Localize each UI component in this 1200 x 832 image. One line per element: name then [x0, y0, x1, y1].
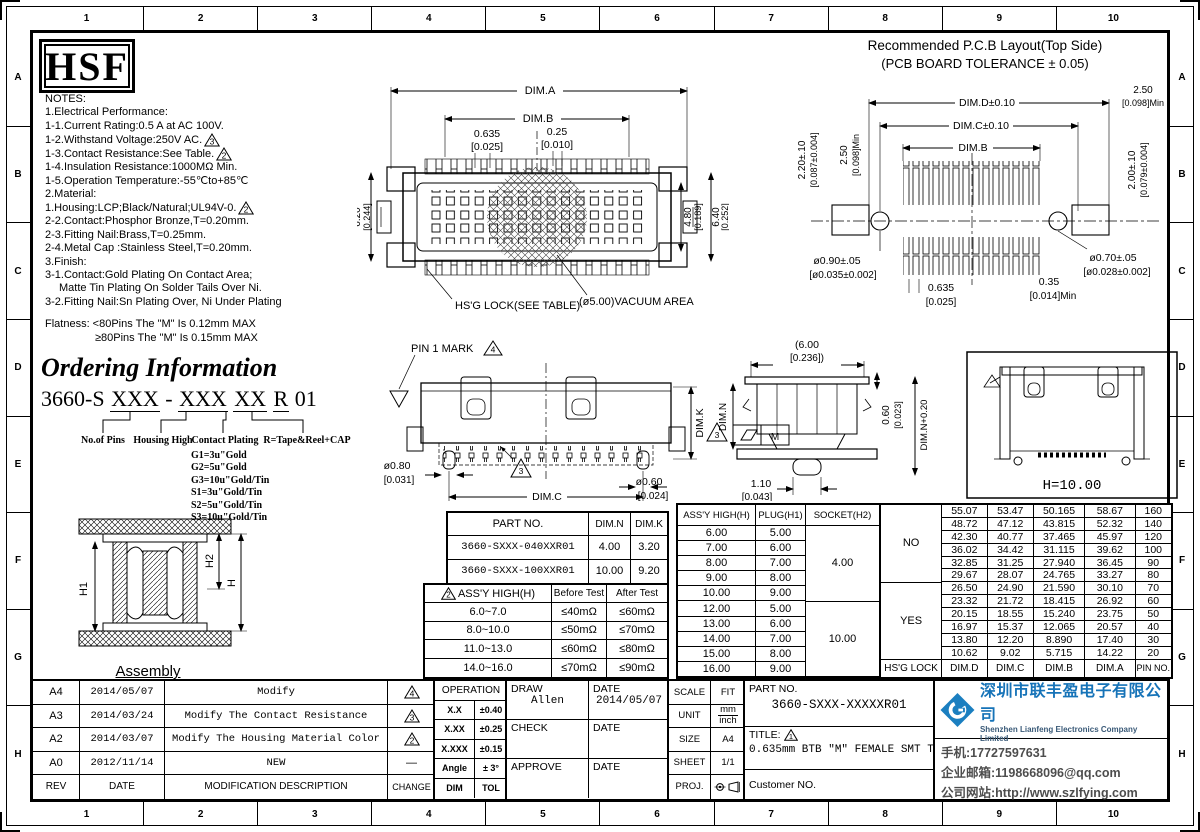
unit-label: UNIT	[669, 705, 711, 729]
sheet-info-block: SCALE FIT UNIT mm inch SIZE A4 SHEET 1/1…	[669, 681, 745, 799]
footer-dim-c: DIM.C	[988, 660, 1033, 677]
table-cell: 6.00	[756, 541, 805, 556]
check-label: CHECK	[511, 722, 584, 734]
pcb-dim-c: DIM.C±0.10	[953, 120, 1009, 132]
pcb-pad: 0.35	[1039, 276, 1060, 288]
ruler-letter: H	[6, 706, 30, 802]
rev-desc: Modify The Housing Material Color	[165, 728, 388, 752]
plating-option: G1=3u"Gold	[191, 450, 269, 462]
pcb-outer-left: 2.20±.10	[797, 140, 808, 179]
table-cell: 3660-SXXX-100XXR01	[448, 560, 589, 583]
table-cell: 39.62	[1085, 544, 1134, 557]
pcb-title-2: (PCB BOARD TOLERANCE ± 0.05)	[881, 56, 1089, 71]
table-cell: 40.77	[988, 531, 1033, 544]
rev-id: A2	[33, 728, 80, 752]
code-housing: XXX	[178, 386, 228, 412]
hsg-lock-note: HS'G LOCK(SEE TABLE)	[455, 300, 580, 312]
pcb-min-left-inch: [0.098]Min	[851, 134, 861, 176]
revision-triangle-icon: 2	[404, 732, 420, 746]
table-cell: 120	[1136, 531, 1172, 544]
scale-value: FIT	[711, 681, 745, 705]
hsf-logo-box: HSF	[39, 39, 135, 93]
corner-mark	[1180, 812, 1200, 832]
table-cell: 5.00	[756, 526, 805, 541]
note-line: 2.Material:	[45, 188, 377, 201]
note-text: 1.Housing:LCP;Black/Natural;UL94V-0.	[45, 202, 236, 215]
label-housing-high: Housing High	[133, 435, 192, 446]
pcb-outer-right-inch: [0.079±0.004]	[1139, 143, 1149, 198]
table-cell: 16.00	[678, 662, 755, 677]
side-view-body	[407, 363, 685, 479]
table-cell: 24.90	[988, 582, 1033, 595]
table-cell: 21.72	[988, 595, 1033, 608]
profile-cap-inch: [0.023]	[893, 401, 903, 429]
table-cell: 12.00	[678, 601, 755, 616]
profile-boss: 1.10	[751, 478, 772, 490]
ordering-leader-lines	[41, 411, 361, 435]
table-cell: 55.07	[942, 505, 986, 518]
dim-a-label: DIM.A	[525, 85, 556, 97]
date-label: DATE	[593, 722, 665, 734]
tol-value: ±0.40	[475, 701, 507, 721]
pcb-pitch-inch: [0.025]	[926, 297, 957, 308]
profile-boss-inch: [0.043]	[742, 492, 773, 501]
table-cell: 9.00	[678, 571, 755, 586]
side-view-dimensions: DIM.K ø0.80 [0.031] ø0.60 [0.024] DIM.C …	[384, 387, 706, 503]
note-line: 2-3.Fitting Nail:Brass,T=0.25mm.	[45, 229, 377, 242]
tol-dim: Angle	[435, 759, 475, 779]
col-header: 2 ASS'Y HIGH(H)	[425, 585, 552, 603]
rev-footer: MODIFICATION DESCRIPTION	[165, 775, 388, 799]
projection-symbol	[711, 775, 745, 799]
third-angle-projection-icon	[714, 781, 742, 793]
rev-date: 2014/05/07	[80, 681, 165, 705]
col-header: Before Test	[552, 585, 607, 603]
table-cell: 12.20	[988, 634, 1033, 647]
table-cell: 15.00	[678, 647, 755, 662]
pcb-outer-left-inch: [0.087±0.004]	[809, 133, 819, 188]
revision-triangle-icon: 3	[404, 709, 420, 723]
table-cell: 13.80	[942, 634, 986, 647]
company-block: 深圳市联丰盈电子有限公司 Shenzhen Lianfeng Electroni…	[935, 681, 1167, 799]
title-value: 0.635mm BTB "M" FEMALE SMT TYPE	[749, 744, 929, 756]
table-cell: 36.02	[942, 544, 986, 557]
assembly-drawing: H1 H2 H	[43, 501, 273, 663]
table-cell: 36.45	[1085, 557, 1134, 570]
assembly-caption: Assembly	[93, 663, 203, 680]
hsg-lock-yes: YES	[881, 583, 941, 661]
ruler-letter: C	[6, 223, 30, 320]
table-cell: 9.00	[756, 586, 805, 601]
ruler-number: 3	[258, 802, 372, 826]
table-cell: 28.07	[988, 569, 1033, 582]
pcb-hole-left: ø0.90±.05	[813, 255, 860, 267]
ruler-letter: H	[1170, 706, 1194, 802]
rev-id: A4	[33, 681, 80, 705]
company-contacts: 手机:17727597631 企业邮箱:1198668096@qq.com 公司…	[935, 739, 1167, 804]
ruler-number: 6	[600, 6, 714, 30]
height-left-inch: [0.244]	[362, 203, 372, 231]
note-line: 2-4.Metal Cap :Stainless Steel,T=0.20mm.	[45, 242, 377, 255]
front-view-dimensions: DIM.A DIM.B 0.635 [0.025] 0.25 [0.010]	[391, 83, 687, 169]
part-no-label: PART NO.	[749, 683, 929, 695]
assembly-geometry	[79, 519, 231, 646]
note-text: 1-2.Withstand Voltage:250V AC.	[45, 134, 202, 147]
socket-h2-high: 10.00	[806, 602, 879, 678]
table-cell: 8.00	[678, 556, 755, 571]
table-cell: 90	[1136, 557, 1172, 570]
ruler-letter: G	[6, 610, 30, 707]
revision-triangle-icon: 2	[441, 587, 456, 600]
approve-date-cell: DATE	[589, 759, 669, 798]
rev-desc: Modify The Contact Resistance	[165, 705, 388, 729]
ruler-number: 10	[1057, 6, 1170, 30]
table-cell: 21.590	[1034, 582, 1084, 595]
profile-body	[737, 377, 877, 475]
table-cell: ≤40mΩ	[552, 603, 607, 621]
note-line: 1-3.Contact Resistance:See Table. 2	[45, 147, 377, 161]
note-line: 3.Finish:	[45, 256, 377, 269]
table-cell: 50	[1136, 608, 1172, 621]
ruler-number: 2	[144, 802, 258, 826]
table-cell: 20.57	[1085, 621, 1134, 634]
h-value-label: H=10.00	[1043, 478, 1102, 494]
triangle-number: 3	[409, 712, 414, 722]
scale-label: SCALE	[669, 681, 711, 705]
table-cell: 140	[1136, 518, 1172, 531]
rev-change: 2	[388, 728, 435, 752]
note-line: 2-2.Contact:Phosphor Bronze,T=0.20mm.	[45, 215, 377, 228]
ruler-number: 5	[486, 6, 600, 30]
table-cell: 58.67	[1085, 505, 1134, 518]
drawing-sheet: 12345678910 12345678910 ABCDEFGH ABCDEFG…	[0, 0, 1200, 832]
note-line: 3-2.Fitting Nail:Sn Plating Over, Ni Und…	[45, 296, 377, 309]
ruler-left: ABCDEFGH	[6, 30, 30, 802]
table-cell: 37.465	[1034, 531, 1084, 544]
ruler-number: 9	[943, 802, 1057, 826]
table-cell: 11.0~13.0	[425, 640, 552, 658]
ruler-letter: F	[6, 513, 30, 610]
table-cell: ≤80mΩ	[607, 640, 667, 658]
company-website[interactable]: 公司网站:http://www.szlfying.com	[941, 782, 1161, 801]
rev-desc: NEW	[165, 752, 388, 776]
triangle-number: 2	[446, 591, 451, 600]
profile-tri-number: 3	[715, 430, 720, 440]
pcb-hole-right: ø0.70±.05	[1089, 252, 1136, 264]
contact-resistance-table: 2 ASS'Y HIGH(H) Before Test After Test 6…	[423, 583, 669, 679]
triangle-number: 2	[244, 205, 249, 215]
tol-value: ± 3°	[475, 759, 507, 779]
hsf-logo-text: HSF	[44, 44, 130, 88]
note-line: 1.Housing:LCP;Black/Natural;UL94V-0. 2	[45, 201, 377, 215]
sheet-label: SHEET	[669, 752, 711, 776]
ruler-number: 4	[372, 6, 486, 30]
table-cell: 16.97	[942, 621, 986, 634]
ruler-number: 5	[486, 802, 600, 826]
title-cell: TITLE: 1 0.635mm BTB "M" FEMALE SMT TYPE	[745, 727, 933, 770]
company-identity: 深圳市联丰盈电子有限公司 Shenzhen Lianfeng Electroni…	[935, 681, 1167, 739]
pcb-min-right: 2.50	[1133, 85, 1153, 96]
table-cell: 3.20	[631, 536, 667, 559]
ruler-number: 7	[715, 802, 829, 826]
flatness-note: Flatness: <80Pins The "M" Is 0.12mm MAX	[45, 318, 377, 331]
table-cell: 12.065	[1034, 621, 1084, 634]
table-cell: 45.97	[1085, 531, 1134, 544]
table-cell: 8.00	[756, 647, 805, 662]
ruler-letter: A	[6, 30, 30, 127]
table-cell: 23.75	[1085, 608, 1134, 621]
draw-date-cell: DATE 2014/05/07	[589, 681, 669, 720]
table-cell: 7.00	[678, 541, 755, 556]
table-cell: 8.0~10.0	[425, 622, 552, 640]
pcb-outer-right: 2.00±.10	[1127, 150, 1138, 189]
footer-dim-d: DIM.D	[942, 660, 986, 677]
operation-header: OPERATION	[435, 681, 507, 701]
date-label: DATE	[593, 761, 665, 773]
size-value: A4	[711, 728, 745, 752]
rev-id: A3	[33, 705, 80, 729]
table-cell: 9.00	[756, 662, 805, 677]
table-cell: 15.37	[988, 621, 1033, 634]
pcb-geometry	[811, 153, 1161, 285]
approve-label: APPROVE	[511, 761, 584, 773]
revision-table: A4 2014/05/07 Modify 4 A3 2014/03/24 Mod…	[33, 681, 435, 799]
unit-value: mm inch	[711, 705, 745, 729]
ruler-number: 1	[30, 802, 144, 826]
ruler-letter: G	[1170, 610, 1194, 707]
table-cell: ≤50mΩ	[552, 622, 607, 640]
draw-label: DRAW	[511, 683, 584, 695]
table-cell: 30	[1136, 634, 1172, 647]
date-label: DATE	[593, 683, 665, 695]
table-cell: 7.00	[756, 556, 805, 571]
pin1-tri-number: 4	[491, 345, 496, 355]
ruler-letter: F	[1170, 513, 1194, 610]
ruler-number: 9	[943, 6, 1057, 30]
table-cell: 5.00	[756, 601, 805, 616]
company-logo-icon	[939, 690, 976, 730]
company-email: 企业邮箱:1198668096@qq.com	[941, 762, 1161, 781]
plating-option: S1=3u"Gold/Tin	[191, 487, 269, 499]
tol-footer: DIM	[435, 779, 475, 799]
tol-footer: TOL	[475, 779, 507, 799]
note-line: NOTES:	[45, 93, 377, 106]
dim-b-label: DIM.B	[523, 113, 554, 125]
code-prefix: 3660-S	[41, 386, 105, 411]
table-cell: 6.0~7.0	[425, 603, 552, 621]
pcb-min-left: 2.50	[839, 145, 850, 165]
ruler-number: 3	[258, 6, 372, 30]
rev-change: —	[388, 752, 435, 776]
pcb-title-1: Recommended P.C.B Layout(Top Side)	[868, 38, 1103, 53]
draw-name: Allen	[511, 695, 584, 707]
flatness-m: M	[771, 432, 779, 443]
table-cell: 5.715	[1034, 647, 1084, 660]
table-cell: 15.240	[1034, 608, 1084, 621]
front-view-body	[377, 131, 697, 275]
dim-h2: H2	[204, 554, 216, 568]
footer-dim-b: DIM.B	[1034, 660, 1084, 677]
table-cell: ≤90mΩ	[607, 659, 667, 677]
table-cell: 7.00	[756, 632, 805, 647]
table-cell: 34.42	[988, 544, 1033, 557]
corner-mark	[1180, 0, 1200, 20]
rev-footer: REV	[33, 775, 80, 799]
height-mid-inch: [0.189]	[693, 203, 703, 231]
label-no-of-pins: No.of Pins	[81, 435, 125, 446]
rev-change: 3	[388, 705, 435, 729]
triangle-number: 1	[788, 732, 792, 741]
table-cell: 3660-SXXX-040XXR01	[448, 536, 589, 559]
table-cell: 47.12	[988, 518, 1033, 531]
flatness-note: ≥80Pins The "M" Is 0.15mm MAX	[45, 332, 377, 345]
rev-date: 2014/03/24	[80, 705, 165, 729]
height-right-inch: [0.252]	[720, 203, 729, 231]
profile-dim-n20: DIM.N+0.20	[919, 400, 930, 451]
table-cell: 53.47	[988, 505, 1033, 518]
footer-dim-a: DIM.A	[1085, 660, 1134, 677]
table-cell: 6.00	[756, 617, 805, 632]
note-text: 1-3.Contact Resistance:See Table.	[45, 148, 214, 161]
col-header: DIM.N	[589, 513, 631, 536]
table-cell: 40	[1136, 621, 1172, 634]
ruler-number: 6	[600, 802, 714, 826]
pin1-mark: PIN 1 MARK 4	[390, 341, 502, 407]
ruler-number: 8	[829, 6, 943, 30]
connector-side-view: PIN 1 MARK 4	[381, 339, 713, 511]
ruler-letter: E	[6, 417, 30, 514]
part-title-block: PART NO. 3660-SXXX-XXXXXR01 TITLE: 1 0.6…	[745, 681, 935, 799]
code-suffix: 01	[295, 386, 317, 411]
table-cell: 60	[1136, 595, 1172, 608]
dim-h: H	[226, 579, 238, 587]
profile-dimensions: DIM.N 0.60 [0.023] DIM.N+0.20 1.10 [0.04…	[718, 373, 930, 501]
pad-inch: [0.010]	[541, 139, 573, 151]
table-cell: 10.00	[678, 586, 755, 601]
ruler-letter: D	[6, 320, 30, 417]
table-cell: 43.815	[1034, 518, 1084, 531]
table-cell: 48.72	[942, 518, 986, 531]
unit-inch: inch	[719, 716, 736, 726]
connector-front-view: DIM.A DIM.B 0.635 [0.025] 0.25 [0.010]	[357, 73, 729, 323]
plating-option: G2=5u"Gold	[191, 462, 269, 474]
triangle-number: 2	[222, 151, 227, 161]
check-cell: CHECK	[507, 720, 589, 759]
table-cell: ≤70mΩ	[552, 659, 607, 677]
ruler-number: 8	[829, 802, 943, 826]
note-line: 1.Electrical Performance:	[45, 106, 377, 119]
profile-width: (6.00	[795, 339, 819, 351]
profile-cap: 0.60	[881, 405, 892, 425]
rev-date: 2012/11/14	[80, 752, 165, 776]
table-cell: 20	[1136, 647, 1172, 660]
col-header: PLUG(H1)	[756, 505, 805, 526]
draw-cell: DRAW Allen	[507, 681, 589, 720]
tol-value: ±0.25	[475, 720, 507, 740]
side-tri-number: 3	[519, 466, 524, 476]
dia-right: ø0.60	[636, 476, 663, 488]
customer-label: Customer NO.	[749, 779, 816, 791]
profile-width-inch: [0.236])	[790, 353, 824, 364]
hsg-lock-no: NO	[881, 505, 941, 583]
triangle-number: 4	[409, 689, 414, 699]
note-line: 1-1.Current Rating:0.5 A at AC 100V.	[45, 120, 377, 133]
dim-h1: H1	[78, 582, 90, 596]
ruler-number: 1	[30, 6, 144, 30]
code-pins: XXX	[110, 386, 160, 412]
pcb-min-right-inch: [0.098]Min	[1122, 98, 1164, 108]
label-contact-plating: Contact Plating	[192, 435, 259, 446]
table-cell: 10.62	[942, 647, 986, 660]
table-cell: 20.15	[942, 608, 986, 621]
table-cell: 14.00	[678, 632, 755, 647]
table-cell: 80	[1136, 569, 1172, 582]
pitch-value: 0.635	[474, 128, 500, 140]
pcb-dim-b: DIM.B	[958, 142, 987, 154]
rev-id: A0	[33, 752, 80, 776]
connector-profile-view: (6.00 [0.236]) DIM.N	[699, 337, 951, 501]
part-no-value: 3660-SXXX-XXXXXR01	[749, 698, 929, 712]
table-cell: 31.115	[1034, 544, 1084, 557]
header-text: ASS'Y HIGH(H)	[458, 588, 535, 600]
code-reel: R	[273, 386, 290, 412]
company-phone: 手机:17727597631	[941, 742, 1161, 761]
col-header: DIM.K	[631, 513, 667, 536]
code-plating: XX	[233, 386, 267, 412]
table-cell: ≤60mΩ	[607, 603, 667, 621]
table-cell: 23.32	[942, 595, 986, 608]
rev-date: 2014/03/07	[80, 728, 165, 752]
table-cell: 42.30	[942, 531, 986, 544]
table-cell: 18.55	[988, 608, 1033, 621]
note-line: 1-5.Operation Temperature:-55℃to+85℃	[45, 175, 377, 188]
table-cell: 8.890	[1034, 634, 1084, 647]
table-cell: 31.25	[988, 557, 1033, 570]
tol-dim: X.XX	[435, 720, 475, 740]
ruler-number: 7	[715, 6, 829, 30]
ruler-number: 10	[1057, 802, 1170, 826]
ruler-number: 4	[372, 802, 486, 826]
table-cell: 4.00	[589, 536, 631, 559]
title-block: A4 2014/05/07 Modify 4 A3 2014/03/24 Mod…	[33, 679, 1167, 799]
revision-triangle-icon: 3	[204, 133, 220, 147]
col-header: ASS'Y HIGH(H)	[678, 505, 755, 526]
table-cell: 10.00	[589, 560, 631, 583]
revision-triangle-icon: 4	[404, 685, 420, 699]
ruler-number: 2	[144, 6, 258, 30]
triangle-number: 3	[210, 137, 215, 147]
table-cell: 8.00	[756, 571, 805, 586]
rev-change: 4	[388, 681, 435, 705]
table-cell: 160	[1136, 505, 1172, 518]
ruler-letter: B	[6, 127, 30, 224]
footer-pin-no: PIN NO.	[1136, 660, 1172, 677]
check-date-cell: DATE	[589, 720, 669, 759]
operation-tolerance-table: OPERATION X.X ±0.40 X.XX ±0.25 X.XXX ±0.…	[435, 681, 507, 799]
ruler-top: 12345678910	[30, 6, 1170, 30]
ordering-code: 3660-S XXX - XXX XX R 01	[41, 386, 317, 412]
pcb-hole-left-inch: [ø0.035±0.002]	[809, 270, 876, 281]
table-cell: 14.0~16.0	[425, 659, 552, 677]
corner-mark	[0, 812, 20, 832]
customer-cell: Customer NO.	[745, 770, 933, 799]
tol-dim: X.X	[435, 701, 475, 721]
rev-footer: DATE	[80, 775, 165, 799]
table-cell: 52.32	[1085, 518, 1134, 531]
h-box-view: H=10.00	[966, 351, 1178, 499]
table-cell: 24.765	[1034, 569, 1084, 582]
ruler-bottom: 12345678910	[30, 802, 1170, 826]
